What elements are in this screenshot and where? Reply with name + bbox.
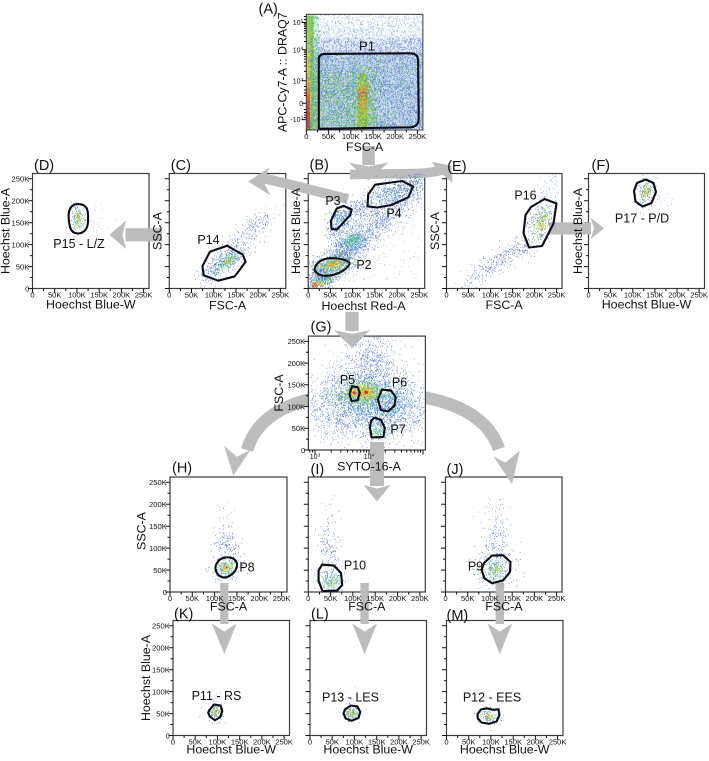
svg-text:Hoechst Blue-W: Hoechst Blue-W [46, 298, 136, 312]
svg-text:SSC-A: SSC-A [151, 211, 165, 250]
svg-text:0: 0 [304, 132, 308, 141]
svg-text:P2: P2 [356, 258, 371, 272]
svg-text:250K: 250K [275, 738, 293, 747]
svg-text:250K: 250K [287, 337, 305, 346]
svg-text:250K: 250K [149, 478, 167, 487]
svg-text:0: 0 [163, 588, 167, 597]
svg-text:P4: P4 [386, 207, 401, 221]
svg-text:(G): (G) [311, 320, 332, 336]
svg-text:P16: P16 [514, 189, 536, 203]
svg-text:(K): (K) [174, 607, 193, 623]
svg-text:50K: 50K [324, 594, 338, 603]
svg-text:P14: P14 [197, 233, 219, 247]
svg-text:200K: 200K [526, 594, 544, 603]
svg-text:250K: 250K [548, 594, 566, 603]
svg-text:250K: 250K [135, 291, 153, 300]
svg-text:FSC-A: FSC-A [346, 140, 384, 154]
svg-text:200K: 200K [287, 359, 305, 368]
svg-text:100K: 100K [12, 240, 30, 249]
svg-text:Hoechst Blue-W: Hoechst Blue-W [323, 743, 413, 757]
svg-text:0: 0 [25, 284, 29, 293]
svg-text:150K: 150K [287, 381, 305, 390]
svg-text:0: 0 [171, 738, 175, 747]
svg-text:SSC-A: SSC-A [428, 211, 442, 250]
svg-text:0: 0 [308, 738, 312, 747]
svg-text:Hoechst Blue-A: Hoechst Blue-A [571, 187, 585, 274]
svg-text:APC-Cy7-A :: DRAQ7: APC-Cy7-A :: DRAQ7 [276, 12, 290, 132]
svg-text:Hoechst Blue-A: Hoechst Blue-A [139, 634, 153, 721]
svg-text:P3: P3 [325, 194, 340, 208]
svg-text:Hoechst Blue-A: Hoechst Blue-A [289, 187, 303, 274]
svg-text:(L): (L) [311, 607, 329, 623]
svg-text:P8: P8 [239, 561, 254, 575]
svg-text:150K: 150K [152, 666, 170, 675]
svg-text:P6: P6 [392, 376, 407, 390]
svg-text:50K: 50K [185, 291, 199, 300]
svg-text:200K: 200K [152, 644, 170, 653]
svg-text:250K: 250K [549, 738, 567, 747]
svg-text:P12 - EES: P12 - EES [463, 691, 521, 705]
svg-text:P9: P9 [468, 560, 483, 574]
svg-text:100K: 100K [149, 544, 167, 553]
svg-text:(H): (H) [172, 461, 192, 477]
svg-text:250K: 250K [12, 175, 30, 184]
svg-text:P10: P10 [344, 559, 366, 573]
svg-text:100K: 100K [152, 687, 170, 696]
svg-text:50K: 50K [153, 566, 167, 575]
svg-text:(E): (E) [447, 159, 466, 175]
svg-text:250K: 250K [412, 738, 430, 747]
svg-text:0: 0 [30, 291, 34, 300]
svg-text:Hoechst Blue-W: Hoechst Blue-W [460, 743, 550, 757]
svg-text:200K: 200K [389, 594, 407, 603]
svg-text:P7: P7 [390, 423, 405, 437]
svg-text:(M): (M) [447, 608, 469, 624]
svg-text:250K: 250K [410, 291, 428, 300]
svg-text:0: 0 [443, 594, 447, 603]
svg-text:P5: P5 [340, 373, 355, 387]
svg-text:250K: 250K [273, 594, 291, 603]
svg-text:0: 0 [306, 291, 310, 300]
svg-text:200K: 200K [12, 197, 30, 206]
svg-text:0: 0 [299, 101, 303, 108]
svg-text:0: 0 [444, 738, 448, 747]
svg-text:200K: 200K [250, 594, 268, 603]
svg-text:0: 0 [166, 731, 170, 740]
svg-text:P1: P1 [359, 39, 375, 54]
svg-text:50K: 50K [156, 709, 170, 718]
svg-text:FSC-A: FSC-A [486, 298, 524, 312]
svg-text:(F): (F) [592, 158, 611, 174]
svg-text:250K: 250K [152, 622, 170, 631]
svg-text:(C): (C) [171, 158, 191, 174]
svg-text:0: 0 [168, 594, 172, 603]
svg-text:0: 0 [306, 594, 310, 603]
svg-text:0: 0 [444, 291, 448, 300]
svg-text:Hoechst Blue-A: Hoechst Blue-A [0, 187, 13, 274]
svg-text:P15 - L/Z: P15 - L/Z [53, 237, 105, 251]
svg-text:(B): (B) [310, 158, 329, 174]
svg-text:250K: 250K [272, 291, 290, 300]
svg-text:Hoechst Blue-W: Hoechst Blue-W [602, 298, 692, 312]
svg-text:0: 0 [167, 291, 171, 300]
svg-text:P11 - RS: P11 - RS [192, 689, 242, 703]
svg-text:FSC-A: FSC-A [209, 299, 247, 313]
svg-text:250K: 250K [411, 594, 429, 603]
svg-text:150K: 150K [12, 219, 30, 228]
svg-text:150K: 150K [149, 522, 167, 531]
svg-text:Hoechst Blue-W: Hoechst Blue-W [186, 743, 276, 757]
svg-text:(I): (I) [311, 462, 325, 478]
svg-text:P13 - LES: P13 - LES [322, 691, 379, 705]
svg-text:50K: 50K [186, 594, 200, 603]
svg-text:FSC-A: FSC-A [210, 600, 248, 614]
svg-text:50K: 50K [292, 424, 306, 433]
svg-text:FSC-A: FSC-A [348, 600, 386, 614]
svg-text:250K: 250K [409, 132, 427, 141]
svg-text:FSC-A: FSC-A [272, 374, 286, 412]
svg-text:100K: 100K [287, 402, 305, 411]
svg-text:FSC-A: FSC-A [485, 600, 523, 614]
svg-text:200K: 200K [149, 500, 167, 509]
svg-text:SYTO-16-A: SYTO-16-A [337, 460, 402, 474]
svg-text:200K: 200K [249, 291, 267, 300]
svg-text:250K: 250K [548, 291, 566, 300]
svg-text:50K: 50K [322, 132, 336, 141]
svg-text:50K: 50K [16, 262, 30, 271]
svg-text:0: 0 [301, 446, 305, 455]
svg-text:P17 - P/D: P17 - P/D [615, 212, 669, 226]
svg-text:(D): (D) [34, 158, 54, 174]
svg-text:(J): (J) [447, 462, 464, 478]
svg-text:Hoechst Red-A: Hoechst Red-A [321, 299, 406, 313]
svg-text:50K: 50K [461, 594, 475, 603]
svg-text:SSC-A: SSC-A [135, 511, 149, 550]
svg-text:200K: 200K [386, 132, 404, 141]
svg-text:0: 0 [586, 291, 590, 300]
svg-text:50K: 50K [462, 291, 476, 300]
svg-text:250K: 250K [690, 291, 708, 300]
svg-text:200K: 200K [526, 291, 544, 300]
